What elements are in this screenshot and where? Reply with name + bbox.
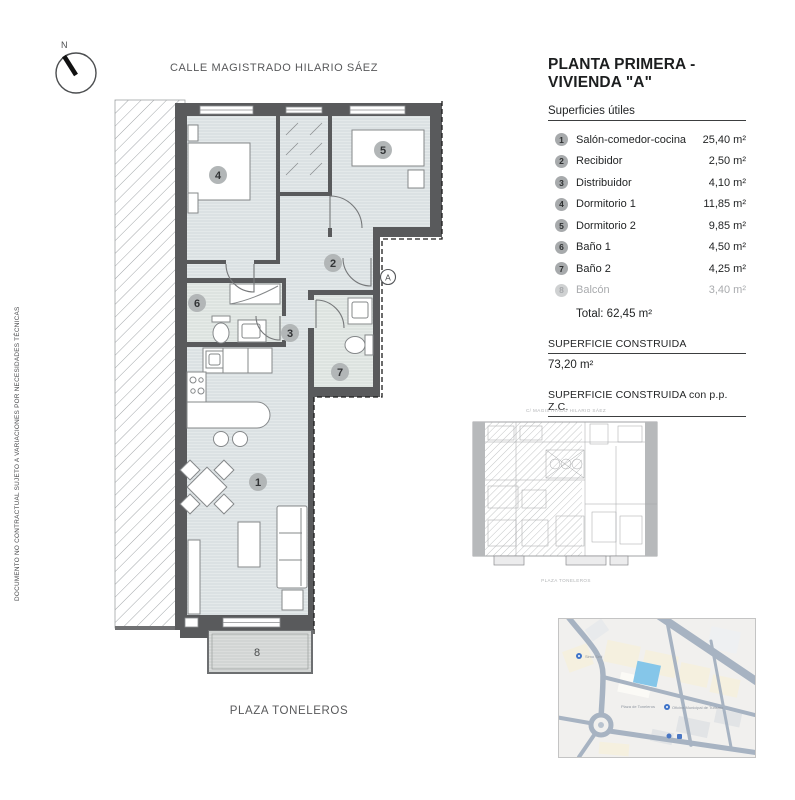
svg-text:Plaza de Toneleros: Plaza de Toneleros [621,704,655,709]
legend-row-6: 6 Baño 1 4,50 m² [548,237,746,259]
built-area-value: 73,20 m² [548,359,746,371]
legend-row-5: 5 Dormitorio 2 9,85 m² [548,215,746,237]
row-badge: 4 [555,198,568,211]
sideboard [188,540,200,614]
room-badge-4: 4 [209,166,227,184]
street-label-bottom: PLAZA TONELEROS [158,705,420,717]
floor-plan: 4 5 2 6 3 7 1 8 A [100,90,460,690]
room-badge-3: 3 [281,324,299,342]
legend-row-4: 4 Dormitorio 1 11,85 m² [548,194,746,216]
thumbnail-unit-a-hatch [485,422,582,556]
side-table [282,590,303,610]
room-badge-2: 2 [324,254,342,272]
disclaimer-note: DOCUMENTO NO CONTRACTUAL SUJETO A VARIAC… [14,271,21,601]
svg-text:5: 5 [380,145,386,157]
building-plan-thumbnail [470,416,662,574]
legend-row-1: 1 Salón-comedor-cocina 25,40 m² [548,129,746,151]
room-badge-1: 1 [249,473,267,491]
room-badge-5: 5 [374,141,392,159]
location-map: Simo Sed Plaza de Toneleros Oficina Muni… [558,618,756,758]
room-badge-8: 8 [254,647,260,659]
row-badge: 6 [555,241,568,254]
street-label-top: CALLE MAGISTRADO HILARIO SÁEZ [128,62,420,74]
toilet-tank [212,316,230,322]
nightstand [188,193,198,213]
stool [214,432,229,447]
plan-sheet: N CALLE MAGISTRADO HILARIO SÁEZ PLAZA TO… [0,0,795,800]
coffee-table [238,522,260,567]
kitchen-peninsula [187,402,270,428]
svg-text:Oficina Municipal de Turismo: Oficina Municipal de Turismo [672,705,724,710]
row-badge: 1 [555,133,568,146]
sofa [277,506,307,588]
toilet-tank [365,335,373,355]
nightstand [408,170,424,188]
row-badge: 3 [555,176,568,189]
svg-text:A: A [385,273,391,283]
room-badge-7: 7 [331,363,349,381]
svg-text:2: 2 [330,258,336,270]
svg-text:3: 3 [287,328,293,340]
row-badge: 7 [555,262,568,275]
map-transit-icon [677,734,682,739]
svg-text:7: 7 [337,367,343,379]
svg-text:Simo Sed: Simo Sed [585,654,602,659]
legend-row-2: 2 Recibidor 2,50 m² [548,151,746,173]
legend-row-7: 7 Baño 2 4,25 m² [548,258,746,280]
stool [233,432,248,447]
map-transit-icon [667,734,672,739]
compass-icon [50,48,100,98]
svg-text:6: 6 [194,298,200,310]
page-title: PLANTA PRIMERA - VIVIENDA "A" [548,56,746,92]
legend-total: Total: 62,45 m² [576,308,746,320]
nightstand [188,125,198,141]
legend-row-3: 3 Distribuidor 4,10 m² [548,172,746,194]
row-badge: 5 [555,219,568,232]
legend-panel: PLANTA PRIMERA - VIVIENDA "A" Superficie… [548,56,746,434]
stove [187,372,206,403]
svg-text:1: 1 [255,477,261,489]
toilet [213,323,229,343]
thumbnail-balconies [494,556,628,565]
thumbnail-caption-top: C/ MAGISTRADO HILARIO SÁEZ [470,408,662,413]
svg-text:4: 4 [215,170,222,182]
legend-row-8: 8 Balcón 3,40 m² [548,280,746,302]
thumbnail-caption-bottom: PLAZA TONELEROS [470,578,662,583]
built-area-header: SUPERFICIE CONSTRUIDA [548,338,746,354]
section-mark-a: A [381,270,396,285]
toilet [345,337,365,354]
row-badge: 2 [555,155,568,168]
row-badge: 8 [555,284,568,297]
room-badge-6: 6 [188,294,206,312]
legend-subtitle: Superficies útiles [548,105,746,121]
